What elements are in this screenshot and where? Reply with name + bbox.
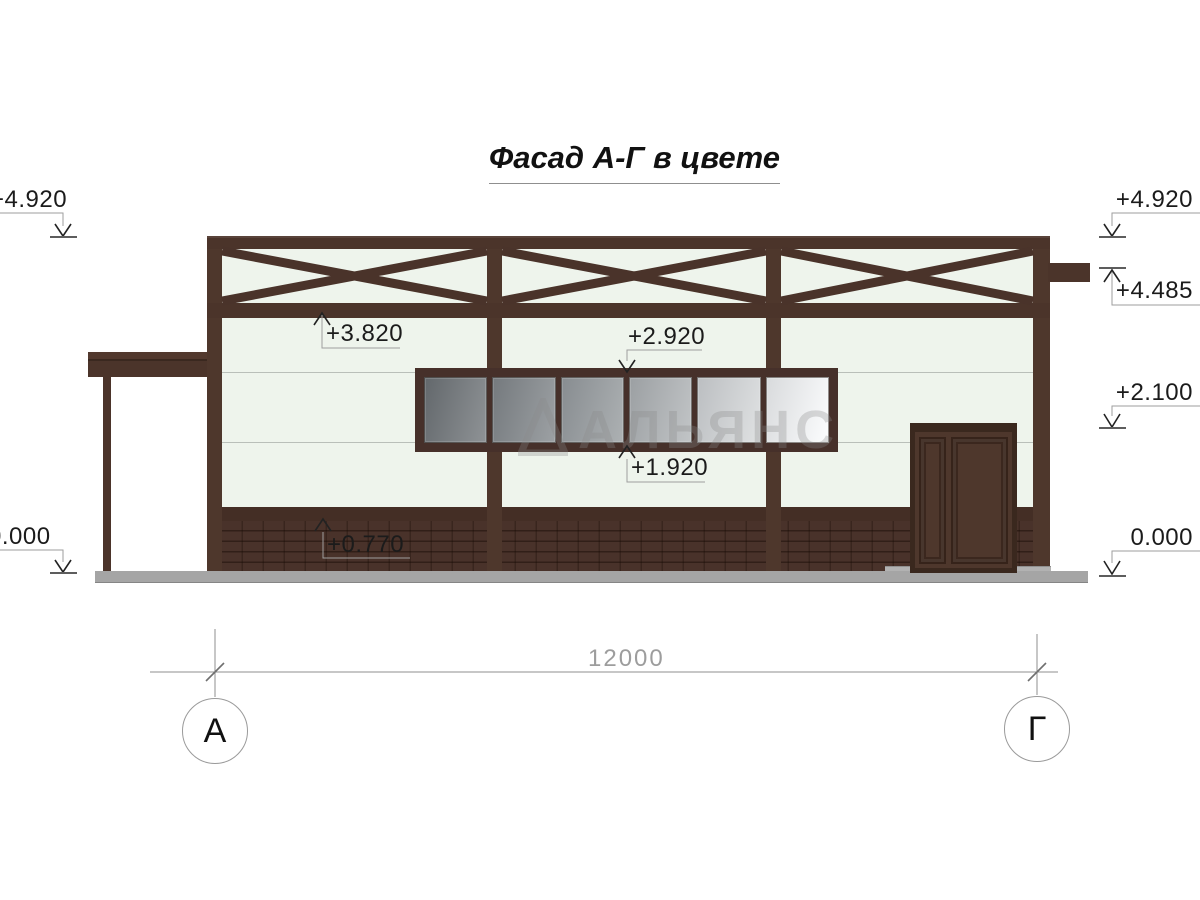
- drawing-title: Фасад А-Г в цвете: [489, 140, 780, 184]
- canopy-post: [103, 377, 111, 571]
- elevation-label-truss-chord: +3.820: [326, 322, 403, 346]
- axis-label-a: А: [204, 712, 227, 751]
- column-left: [207, 236, 222, 573]
- column-right: [1033, 236, 1050, 573]
- door-leaf-narrow: [919, 437, 946, 564]
- elevation-mark-right-roof: [1099, 213, 1200, 237]
- dimension-label: 12000: [588, 645, 665, 673]
- elevation-label-window-sill: +1.920: [631, 456, 708, 480]
- window-pane: [424, 377, 487, 443]
- window-pane: [697, 377, 760, 443]
- elevation-label-plinth-top: +0.770: [327, 533, 404, 557]
- truss-bottom-chord: [207, 303, 1050, 318]
- window-pane: [492, 377, 555, 443]
- elevation-mark-left-ground: [0, 550, 77, 573]
- elevation-label-right-ground: 0.000: [1130, 526, 1193, 550]
- canopy-fascia: [88, 352, 207, 377]
- axis-bubble-a: А: [182, 698, 248, 764]
- elevation-label-right-truss: +4.485: [1116, 279, 1193, 303]
- elevation-mark-right-ground: [1099, 551, 1200, 576]
- axis-label-g: Г: [1028, 710, 1046, 749]
- window-pane: [766, 377, 829, 443]
- roof-cap-beam: [207, 236, 1050, 249]
- entrance-door: [910, 423, 1017, 573]
- elevation-label-left-ground: 0.000: [0, 525, 51, 549]
- window-pane: [629, 377, 692, 443]
- elevation-label-window-head: +2.920: [628, 325, 705, 349]
- elevation-label-right-midwall: +2.100: [1116, 381, 1193, 405]
- elevation-label-right-roof: +4.920: [1116, 188, 1193, 212]
- window-pane: [561, 377, 624, 443]
- axis-bubble-g: Г: [1004, 696, 1070, 762]
- door-leaf-wide: [951, 437, 1008, 564]
- strip-window: [415, 368, 838, 452]
- side-beam-stub: [1048, 263, 1090, 282]
- elevation-label-left-roof: +4.920: [0, 188, 67, 212]
- elevation-mark-left-roof: [0, 213, 77, 237]
- facade-elevation-drawing: Фасад А-Г в цвете АЛЬЯНС: [0, 0, 1200, 900]
- elevation-mark-right-midwall: [1099, 406, 1200, 428]
